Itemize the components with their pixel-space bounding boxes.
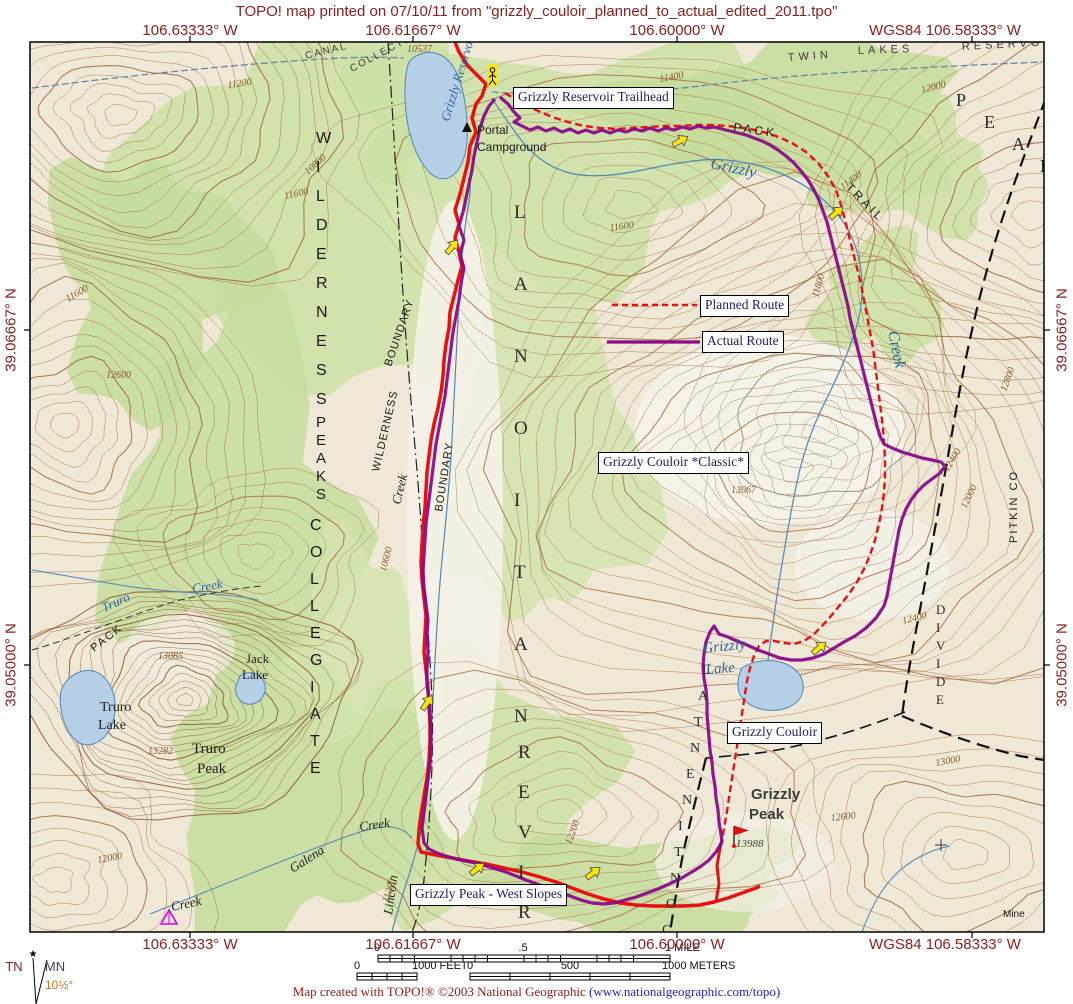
credit-text: Map created with TOPO!® ©2003 National G… [293,984,589,999]
vertical-letter: D [316,217,328,234]
feature-label: Grizzly [751,786,801,803]
vertical-letter: O [310,544,322,561]
vertical-letter: A [1012,134,1025,154]
longitude-label-top-4: WGS84 106.58333° W [869,22,1021,39]
feature-label: 13988 [736,838,764,850]
feet-scale-end: 1000 FEET [412,960,468,972]
vertical-letter: E [518,782,530,803]
feature-label: LAKES [858,43,914,57]
vertical-letter: E [316,333,327,350]
vertical-letter: P [316,414,326,431]
vertical-letter: V [518,822,532,843]
vertical-letter: V [936,638,946,653]
vertical-letter: E [310,760,321,777]
vertical-letter: G [310,652,322,669]
true-north-star-icon: ★ [29,949,38,960]
feature-label: Truro [192,741,226,757]
longitude-label-bottom-2: 106.61667° W [365,936,460,953]
feature-label: Lake [98,718,126,733]
vertical-letter: A [698,689,709,704]
vertical-letter: S [316,391,327,408]
feature-label: Peak [197,761,227,777]
vertical-letter: N [316,304,328,321]
vertical-letter: L [702,663,711,678]
feature-label: Jack [246,651,270,666]
grizzly-lake [738,661,803,711]
vertical-letter: I [936,620,940,635]
vertical-letter: N [514,706,528,727]
vertical-letter: A [310,706,321,723]
vertical-letter: T [674,845,683,860]
spot-elevation: 10537 [407,44,433,55]
meters-scale-mid: 500 [561,960,579,972]
latitude-label-right-1: 39.06667° N [1054,288,1071,372]
vertical-letter: T [514,562,526,583]
vertical-letter: D [936,674,945,689]
vertical-letter: I [316,159,320,176]
spot-elevation: 13067 [731,485,757,496]
vertical-letter: A [514,274,528,295]
vertical-letter: S [316,362,327,379]
magnetic-north-label: MN [45,959,65,974]
vertical-letter: E [686,767,695,782]
spot-elevation: 12600 [106,370,131,381]
vertical-letter: E [316,432,326,449]
vertical-letter: P [956,90,966,110]
vertical-letter: A [316,450,326,467]
map-content: Grizzly ReservoirPortalCampgroundPACKTRA… [0,0,1073,989]
vertical-letter: L [310,598,319,615]
vertical-letter: K [316,468,326,485]
legend-planned-route-label: Planned Route [700,295,789,317]
map-credit: Map created with TOPO!® ©2003 National G… [0,984,1073,1000]
spot-elevation: 13085 [158,651,183,662]
vertical-letter: N [682,793,692,808]
west-slopes-label: Grizzly Peak - West Slopes [410,884,567,906]
longitude-label-top-1: 106.63333° W [142,22,237,39]
vertical-letter: T [694,715,703,730]
true-north-label: TN [5,959,22,974]
vertical-letter: L [316,188,325,205]
longitude-label-bottom-4: WGS84 106.58333° W [869,936,1021,953]
longitude-label-bottom-3: 106.60000° W [629,936,724,953]
feature-label: Lake [242,667,268,682]
credit-url: (www.nationalgeographic.com/topo) [589,984,780,999]
vertical-letter: S [316,486,326,503]
vertical-letter: E [936,692,944,707]
mile-scale-half: .5 [518,942,527,954]
feature-label: Portal [477,123,508,137]
vertical-letter: T [310,733,320,750]
vertical-letter: R [518,742,531,763]
vertical-letter: O [514,418,528,439]
meters-scale-zero: 0 [467,960,473,972]
latitude-label-left-2: 39.05000° N [3,623,20,707]
hiker-icon [487,64,498,86]
vertical-letter: K [1040,156,1053,176]
spot-elevation: 13282 [148,746,173,757]
scale-bars [357,955,670,980]
vertical-letter: N [670,871,680,886]
vertical-letter: L [514,202,526,223]
vertical-letter: I [936,656,940,671]
topo-map-page: Grizzly ReservoirPortalCampgroundPACKTRA… [0,0,1073,1004]
longitude-label-top-3: 106.60000° W [629,22,724,39]
vertical-letter: L [310,571,319,588]
feature-label: Campground [477,140,546,154]
print-title: TOPO! map printed on 07/10/11 from "griz… [0,3,1073,20]
vertical-letter: E [316,246,327,263]
map-canvas: Grizzly ReservoirPortalCampgroundPACKTRA… [0,0,1073,1004]
latitude-label-right-2: 39.05000° N [1054,623,1071,707]
vertical-letter: N [514,346,528,367]
vertical-letter: I [514,490,520,511]
feature-label: Peak [749,806,785,823]
vertical-letter: D [936,602,945,617]
vertical-letter: E [310,625,321,642]
vertical-letter: C [310,517,322,534]
vertical-letter: I [518,862,524,883]
vertical-letter: E [984,112,995,132]
grizzly-couloir-label: Grizzly Couloir [727,722,822,744]
longitude-label-top-2: 106.61667° W [365,22,460,39]
vertical-letter: N [690,741,700,756]
latitude-label-left-1: 39.06667° N [3,288,20,372]
classic-couloir-label: Grizzly Couloir *Classic* [598,452,749,474]
longitude-label-bottom-1: 106.63333° W [142,936,237,953]
feature-label: PITKIN CO [1008,470,1020,543]
vertical-letter: W [316,130,332,147]
vertical-letter: I [678,819,683,834]
feet-scale-zero: 0 [354,960,360,972]
trailhead-label: Grizzly Reservoir Trailhead [513,87,674,109]
vertical-letter: I [310,679,314,696]
vertical-letter: R [316,275,328,292]
meters-scale-end: 1000 METERS [662,960,735,972]
vertical-letter: O [666,897,676,912]
feature-label: Truro [100,700,131,715]
legend-actual-route-label: Actual Route [702,331,784,353]
feature-label: Mine [1003,909,1025,920]
vertical-letter: A [514,634,528,655]
